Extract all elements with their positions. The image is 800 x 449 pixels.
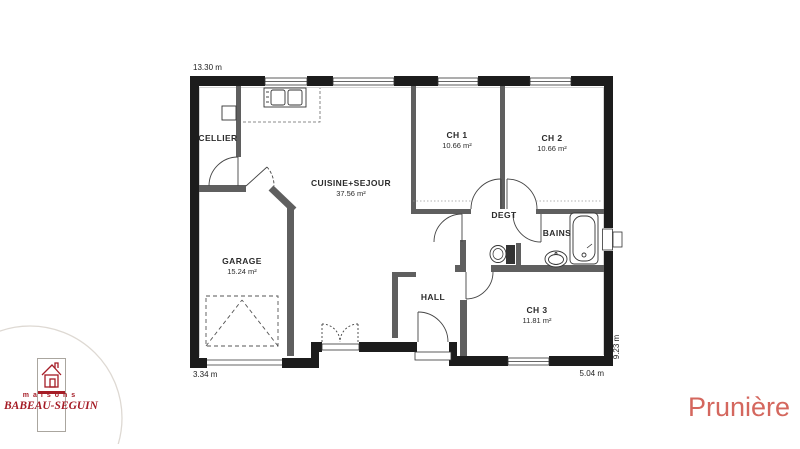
window-icon xyxy=(438,75,478,87)
garage-door-icon xyxy=(207,357,282,369)
floor-plan-page: { "title": "Prunière", "brand": { "line1… xyxy=(0,0,800,444)
front-door-opening xyxy=(415,341,451,360)
room-label-ch1: CH 1 xyxy=(447,130,468,140)
door-garage-icon xyxy=(246,167,274,186)
water-heater-icon xyxy=(222,106,236,120)
door-cellier-icon xyxy=(209,157,238,186)
room-area-ch2: 10.66 m² xyxy=(537,144,567,153)
brand-babeau-seguin: BABEAU-SEGUIN xyxy=(2,400,100,412)
room-label-degt: DEGT xyxy=(491,210,517,220)
floor-plan-drawing: 13.30 m 3.34 m 5.04 m 9.23 m CELLIER CUI… xyxy=(0,0,800,444)
dimension-bottom-right: 5.04 m xyxy=(580,369,605,378)
window-icon xyxy=(265,75,307,87)
washbasin-icon xyxy=(545,251,567,267)
wall-wc xyxy=(516,243,521,267)
room-label-ch3: CH 3 xyxy=(527,305,548,315)
room-label-bains: BAINS xyxy=(543,228,571,238)
room-area-ch3: 11.81 m² xyxy=(522,316,552,325)
wall-hall-cap xyxy=(392,272,416,277)
room-label-garage: GARAGE xyxy=(222,256,262,266)
window-icon xyxy=(508,355,549,367)
wall-hall-left xyxy=(392,272,398,338)
door-ch1-icon xyxy=(471,179,501,209)
wall-ch1-bottom xyxy=(411,209,471,214)
wall-cellier xyxy=(236,86,241,157)
wall-step-garage xyxy=(311,342,319,368)
window-icon xyxy=(603,228,623,251)
door-bains-icon xyxy=(513,214,541,242)
door-cuisine-degt-icon xyxy=(434,214,462,242)
dimension-bottom-left: 3.34 m xyxy=(193,370,218,379)
wall-garage-top xyxy=(199,185,246,192)
house-icon xyxy=(39,360,64,392)
door-ch3-icon xyxy=(466,272,493,299)
room-label-cellier: CELLIER xyxy=(198,133,237,143)
bathtub-icon xyxy=(570,213,598,264)
room-area-cuisine: 37.56 m² xyxy=(336,189,366,198)
room-area-ch1: 10.66 m² xyxy=(442,141,472,150)
toilet-icon xyxy=(490,245,515,264)
window-icon xyxy=(333,75,394,87)
door-french-icon xyxy=(322,324,358,342)
wall-garage-diagonal xyxy=(271,188,294,210)
plan-title: Prunière xyxy=(640,392,790,423)
room-label-cuisine: CUISINE+SEJOUR xyxy=(311,178,391,188)
degt-door-gap xyxy=(466,264,491,273)
wall-ch3-left xyxy=(460,300,467,356)
wall-right xyxy=(604,76,613,366)
room-area-garage: 15.24 m² xyxy=(227,267,257,276)
wall-garage-right xyxy=(287,207,294,356)
garage-parking-marks xyxy=(206,296,278,346)
brand-maisons: maisons xyxy=(8,392,94,399)
wall-degt-left xyxy=(460,240,466,267)
window-icon xyxy=(530,75,571,87)
dimension-top: 13.30 m xyxy=(193,63,222,72)
wall-left xyxy=(190,76,199,368)
door-ch2-icon xyxy=(507,179,537,209)
french-door-icon xyxy=(322,341,359,353)
wall-cuisine-ch1 xyxy=(411,86,416,213)
door-front-icon xyxy=(418,312,448,342)
dimension-right: 9.23 m xyxy=(612,334,621,359)
kitchen-sink-icon xyxy=(264,88,306,107)
room-label-ch2: CH 2 xyxy=(542,133,563,143)
room-label-hall: HALL xyxy=(421,292,445,302)
